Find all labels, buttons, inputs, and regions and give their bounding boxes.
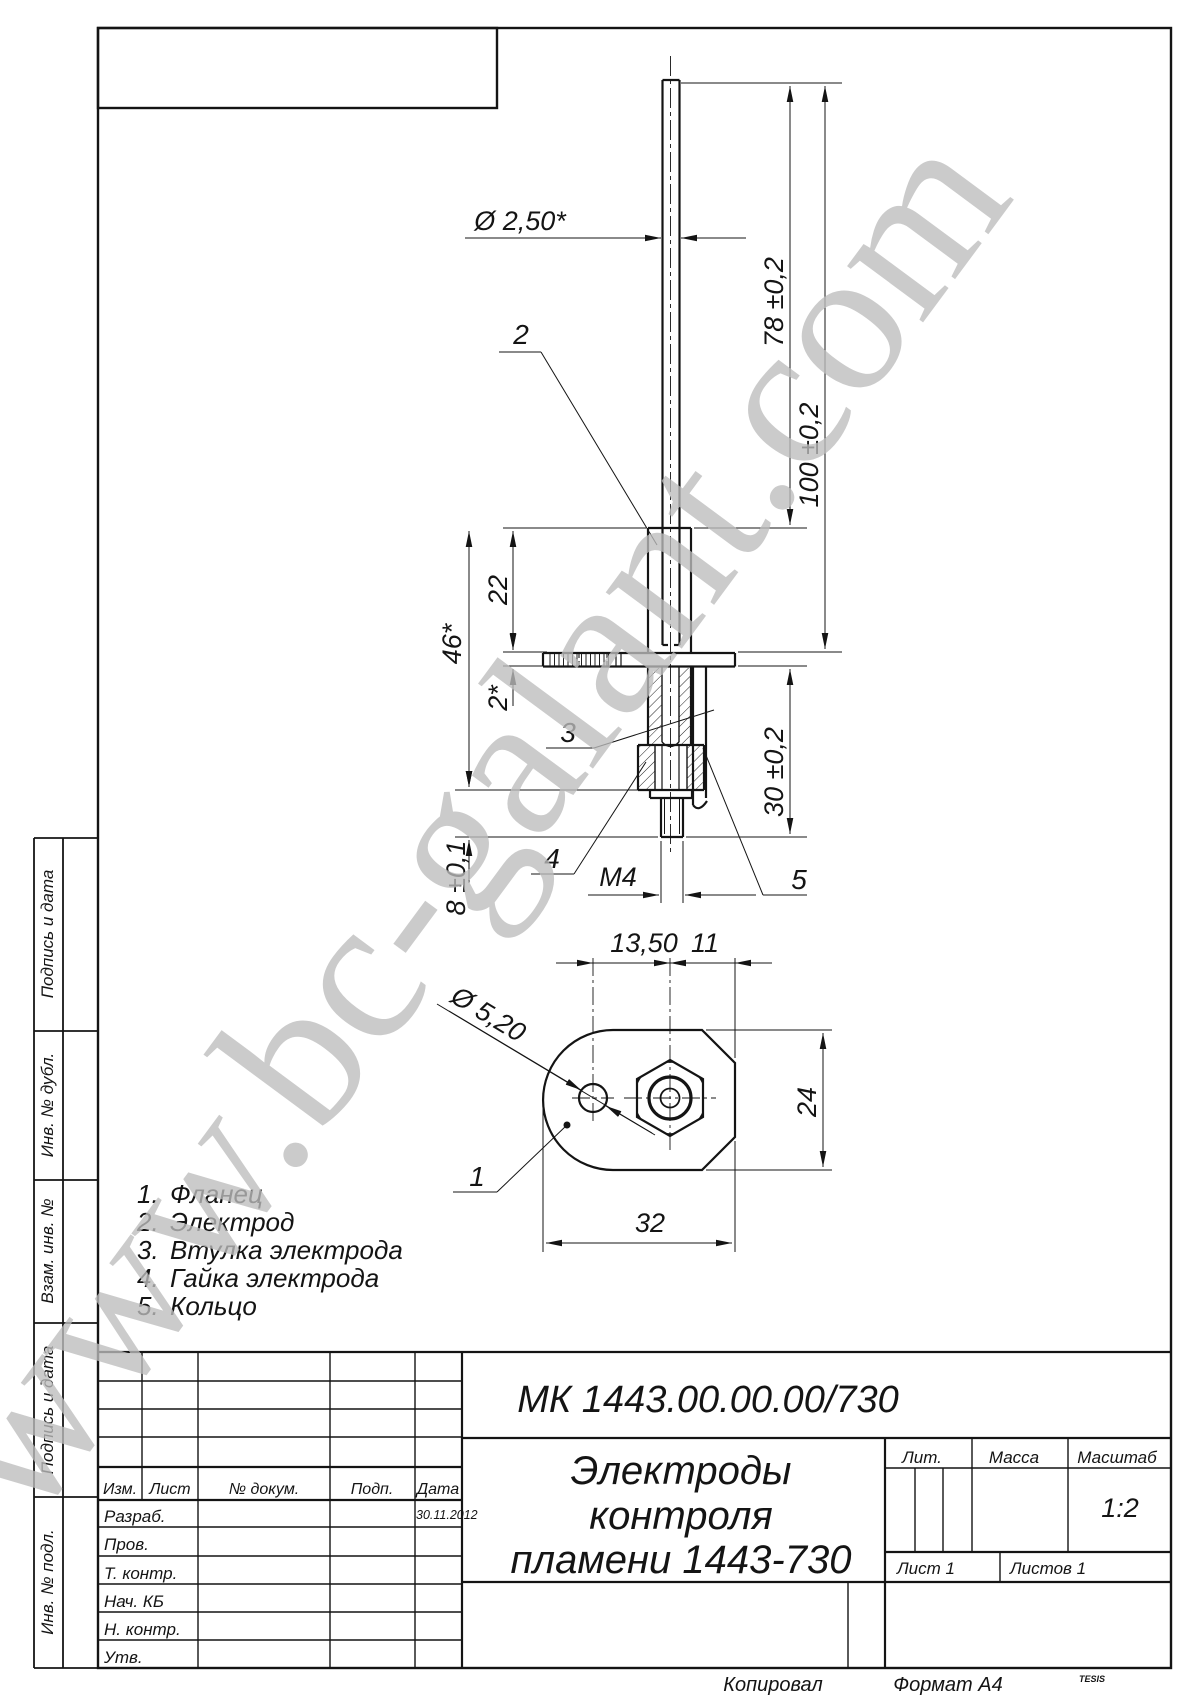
side-label-inv-dubl: Инв. № дубл. xyxy=(38,1053,57,1158)
callout-1: 1 xyxy=(469,1161,485,1192)
side-label-vzam-inv: Взам. инв. № xyxy=(38,1198,57,1303)
doc-title-line2: контроля xyxy=(589,1494,773,1538)
parts-item-num: 2. xyxy=(136,1207,159,1237)
dim-32: 32 xyxy=(635,1208,665,1238)
parts-item-num: 4. xyxy=(137,1263,159,1293)
footer: Копировал Формат А4 TESIS xyxy=(723,1674,1105,1696)
col-doc: № докум. xyxy=(229,1481,299,1498)
callout-1-dot xyxy=(564,1122,571,1129)
row-utv: Утв. xyxy=(103,1648,143,1667)
flange-outline xyxy=(543,1030,735,1170)
dim-rod-diameter: Ø 2,50* xyxy=(473,206,567,236)
dim-78: 78 ±0,2 xyxy=(759,257,789,347)
side-label-inv-podl: Инв. № подл. xyxy=(38,1529,57,1635)
side-label-podpis-data-1: Подпись и дата xyxy=(38,870,57,999)
parts-item-name: Втулка электрода xyxy=(170,1235,403,1265)
front-dim-texts: Ø 2,50* 78 ±0,2 100 ±0,2 22 46* 2* 30 ±0… xyxy=(437,206,824,915)
sheet-cell: Лист 1 xyxy=(896,1559,955,1578)
callout-5: 5 xyxy=(791,864,807,895)
dim-100: 100 ±0,2 xyxy=(794,403,824,508)
scale-value: 1:2 xyxy=(1101,1493,1139,1523)
row-nachkb: Нач. КБ xyxy=(104,1592,164,1611)
dim-22: 22 xyxy=(483,575,513,606)
col-list: Лист xyxy=(148,1481,190,1498)
callout-4: 4 xyxy=(544,843,560,874)
parts-item-name: Гайка электрода xyxy=(170,1263,379,1293)
dim-8: 8 ±0,1 xyxy=(441,841,471,916)
dim-2: 2* xyxy=(483,684,513,712)
footer-format: Формат А4 xyxy=(893,1674,1002,1696)
doc-title-line3: пламени 1443-730 xyxy=(511,1538,852,1582)
sheets-cell: Листов 1 xyxy=(1009,1559,1086,1578)
parts-list: 1. Фланец 2. Электрод 3. Втулка электрод… xyxy=(136,1179,403,1321)
row-tkontr: Т. контр. xyxy=(104,1564,177,1583)
row-razrab: Разраб. xyxy=(104,1507,166,1526)
footer-copied: Копировал xyxy=(723,1674,822,1696)
col-date: Дата xyxy=(415,1481,459,1498)
date-value: 30.11.2012 xyxy=(416,1508,478,1522)
dim-hole-diameter: Ø 5,20 xyxy=(445,980,531,1048)
col-izm: Изм. xyxy=(103,1481,137,1498)
left-column-labels: Подпись и дата Инв. № дубл. Взам. инв. №… xyxy=(38,870,57,1635)
callout-3: 3 xyxy=(560,717,576,748)
top-left-stamp-box xyxy=(98,28,497,108)
title-block: МК 1443.00.00.00/730 Электроды контроля … xyxy=(103,1379,1158,1667)
parts-item-name: Фланец xyxy=(170,1179,263,1209)
doc-designation: МК 1443.00.00.00/730 xyxy=(517,1379,899,1421)
dim-11: 11 xyxy=(691,928,719,958)
parts-item-num: 3. xyxy=(137,1235,159,1265)
dim-24: 24 xyxy=(792,1087,822,1118)
lit-label: Лит. xyxy=(901,1448,942,1467)
bottom-dim-texts: 13,50 11 Ø 5,20 24 32 1 xyxy=(445,928,822,1238)
parts-item-num: 1. xyxy=(137,1179,159,1209)
col-sign: Подп. xyxy=(351,1481,394,1498)
callout-2: 2 xyxy=(512,319,529,350)
parts-item-name: Кольцо xyxy=(170,1291,257,1321)
side-label-podpis-data-2: Подпись и дата xyxy=(38,1346,57,1475)
bottom-view: 13,50 11 Ø 5,20 24 32 1 xyxy=(437,928,832,1252)
sheet-frame xyxy=(98,28,1171,1668)
doc-title-line1: Электроды xyxy=(571,1449,792,1493)
footer-brand: TESIS xyxy=(1079,1674,1105,1684)
row-nkontr: Н. контр. xyxy=(104,1620,181,1639)
dim-30: 30 ±0,2 xyxy=(759,727,789,817)
parts-item-name: Электрод xyxy=(170,1207,294,1237)
row-prov: Пров. xyxy=(104,1535,149,1554)
dim-46: 46* xyxy=(437,622,467,664)
parts-item-num: 5. xyxy=(137,1291,159,1321)
flange-thread-texture xyxy=(546,654,610,666)
scale-label: Масштаб xyxy=(1077,1448,1158,1467)
drawing-sheet: Подпись и дата Инв. № дубл. Взам. инв. №… xyxy=(0,0,1200,1697)
mass-label: Масса xyxy=(989,1448,1039,1467)
dim-m4: M4 xyxy=(599,862,637,892)
dim-13-50: 13,50 xyxy=(610,928,678,958)
